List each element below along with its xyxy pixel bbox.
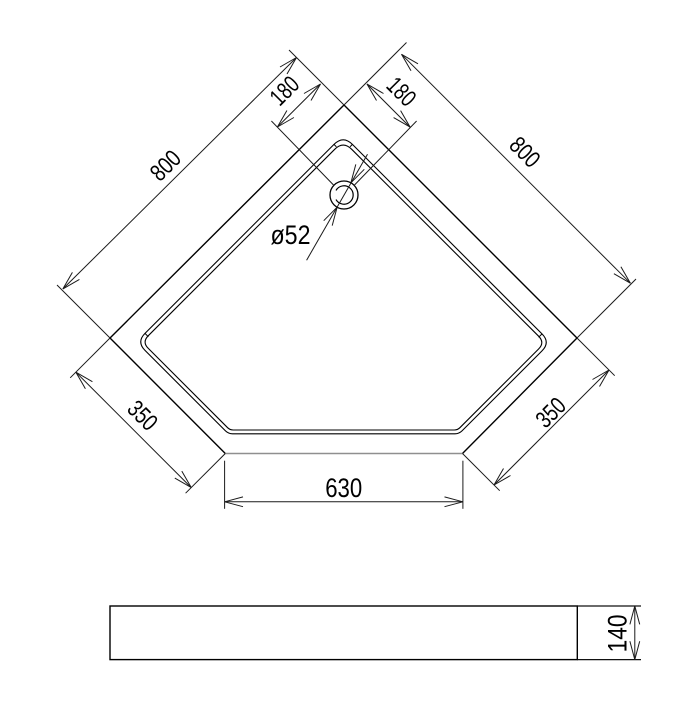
svg-text:180: 180 [381,72,421,112]
svg-text:350: 350 [122,395,163,436]
svg-text:800: 800 [145,145,187,187]
svg-text:800: 800 [504,132,546,174]
svg-text:ø52: ø52 [271,220,311,250]
svg-text:140: 140 [602,614,632,652]
svg-text:350: 350 [531,393,572,434]
svg-text:630: 630 [325,473,362,503]
